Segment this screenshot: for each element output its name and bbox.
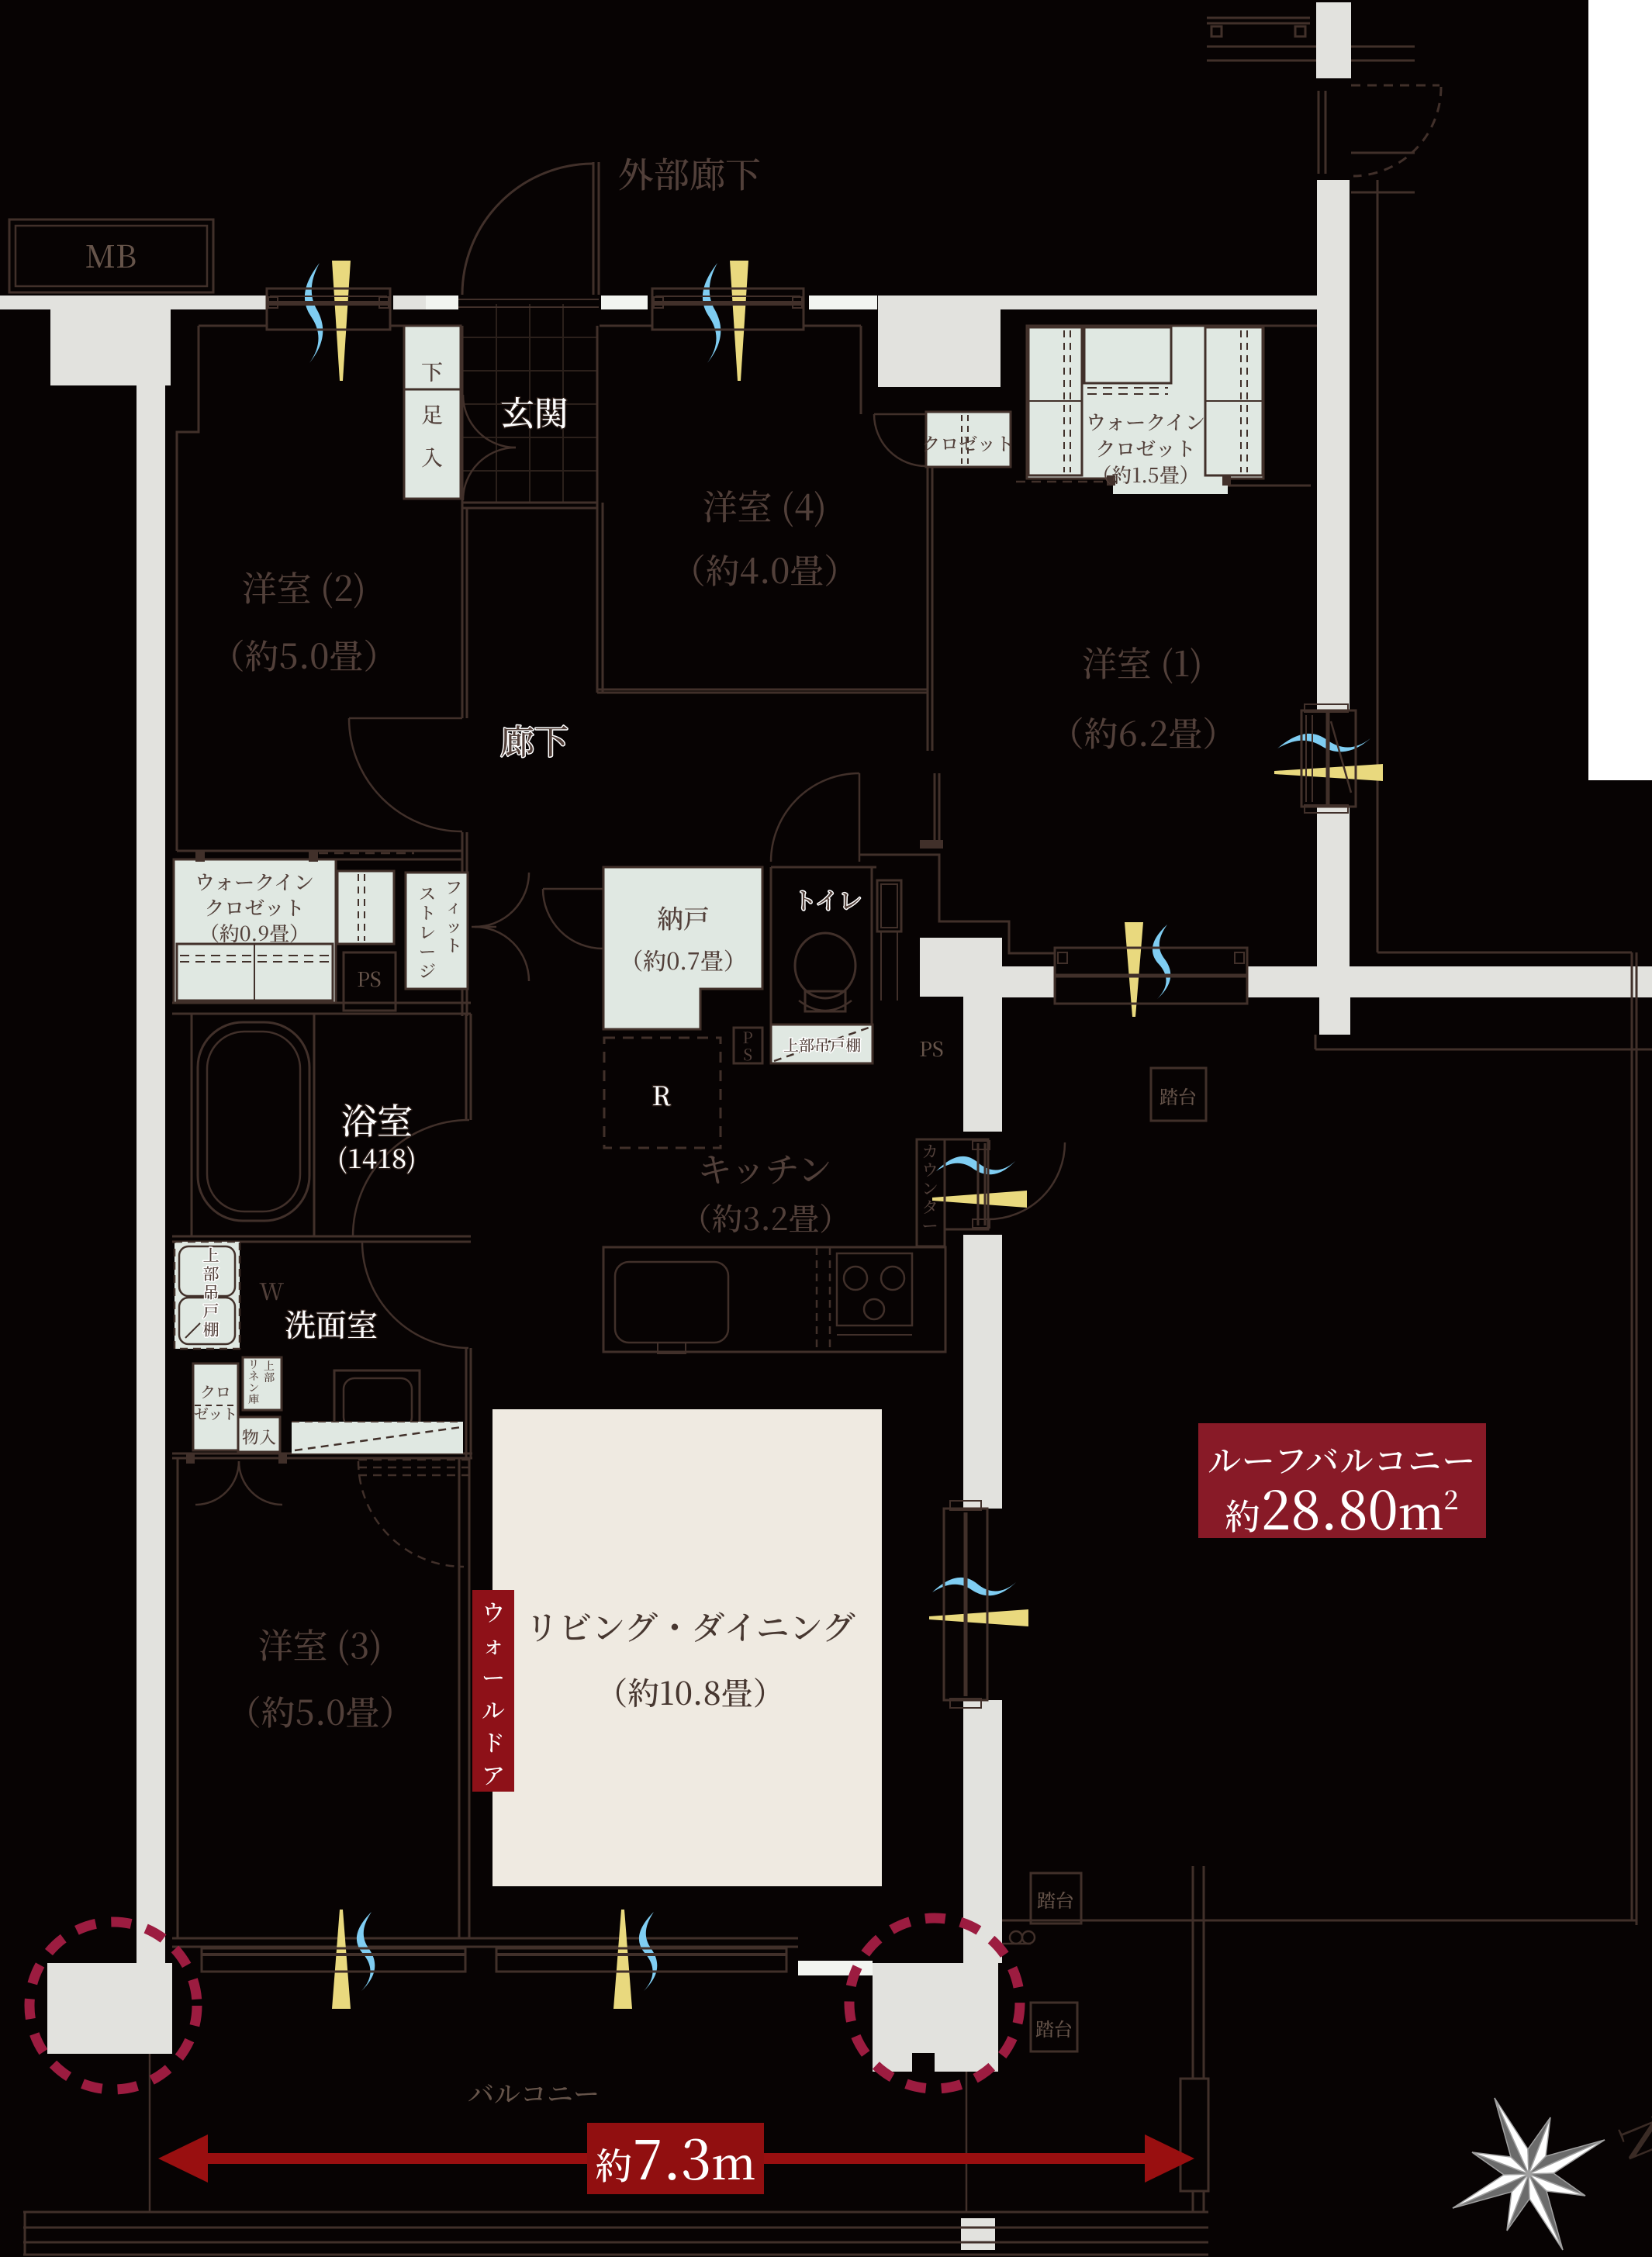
svg-text:洋室 (4): 洋室 (4) [703,479,827,530]
svg-text:（約5.0畳）: （約5.0畳） [211,629,397,679]
svg-text:S: S [743,1042,752,1065]
svg-text:クロ: クロ [200,1380,231,1402]
svg-text:W: W [259,1273,284,1307]
svg-text:（約0.7畳）: （約0.7畳） [620,942,747,976]
svg-text:納戸: 納戸 [657,898,710,936]
svg-text:ト: ト [445,933,462,957]
svg-text:ウォークイン: ウォークイン [1086,407,1205,436]
svg-text:ゼット: ゼット [194,1403,238,1424]
svg-text:PS: PS [919,1034,944,1063]
svg-text:（約5.0畳）: （約5.0畳） [227,1685,413,1735]
svg-text:バルコニー: バルコニー [468,2073,600,2111]
svg-text:(1418): (1418) [337,1138,416,1176]
svg-text:ウォークイン: ウォークイン [195,867,314,896]
svg-text:入: 入 [421,441,443,472]
svg-text:洋室 (1): 洋室 (1) [1082,636,1203,686]
svg-text:踏台: 踏台 [1037,1885,1074,1913]
svg-text:ド: ド [482,1724,505,1758]
svg-text:トイレ: トイレ [793,882,862,916]
svg-text:部: 部 [264,1370,275,1385]
svg-text:ォ: ォ [482,1626,505,1661]
svg-text:下: 下 [421,356,443,387]
svg-text:洋室 (3): 洋室 (3) [258,1618,382,1668]
svg-text:クロゼット: クロゼット [204,893,304,921]
svg-text:（約4.0畳）: （約4.0畳） [672,544,858,593]
svg-text:庫: 庫 [248,1391,259,1407]
svg-text:洗面室: 洗面室 [285,1301,378,1346]
svg-text:ア: ア [482,1757,505,1791]
svg-text:踏台: 踏台 [1160,1082,1197,1109]
svg-text:玄関: 玄関 [500,386,569,436]
svg-text:PS: PS [357,964,382,993]
svg-text:ー: ー [482,1659,505,1693]
svg-text:ー: ー [922,1214,938,1237]
svg-text:約28.80m2: 約28.80m2 [1225,1470,1458,1545]
svg-text:クロゼット: クロゼット [921,429,1014,456]
svg-text:クロゼット: クロゼット [1095,434,1195,462]
svg-text:（約10.8畳）: （約10.8畳） [596,1668,784,1714]
svg-text:廊下: 廊下 [500,714,569,764]
svg-text:足: 足 [421,399,443,430]
svg-text:リビング・ダイニング: リビング・ダイニング [525,1602,855,1650]
svg-text:（約6.2畳）: （約6.2畳） [1050,707,1237,756]
svg-text:MB: MB [85,233,137,277]
svg-text:踏台: 踏台 [1035,2014,1073,2041]
svg-text:物入: 物入 [242,1425,276,1449]
svg-text:（約1.5畳）: （約1.5畳） [1091,460,1200,489]
svg-text:棚: 棚 [203,1318,219,1341]
svg-text:洋室 (2): 洋室 (2) [242,561,367,611]
svg-text:ジ: ジ [419,959,436,983]
svg-text:（約3.2畳）: （約3.2畳） [681,1195,851,1239]
svg-text:（約0.9畳）: （約0.9畳） [199,918,309,947]
svg-text:キッチン: キッチン [698,1142,832,1192]
svg-text:ル: ル [482,1692,505,1726]
svg-text:ウ: ウ [482,1594,505,1628]
svg-text:外部廊下: 外部廊下 [618,147,761,199]
svg-text:R: R [652,1075,672,1113]
svg-text:上部吊戸棚: 上部吊戸棚 [783,1033,861,1056]
